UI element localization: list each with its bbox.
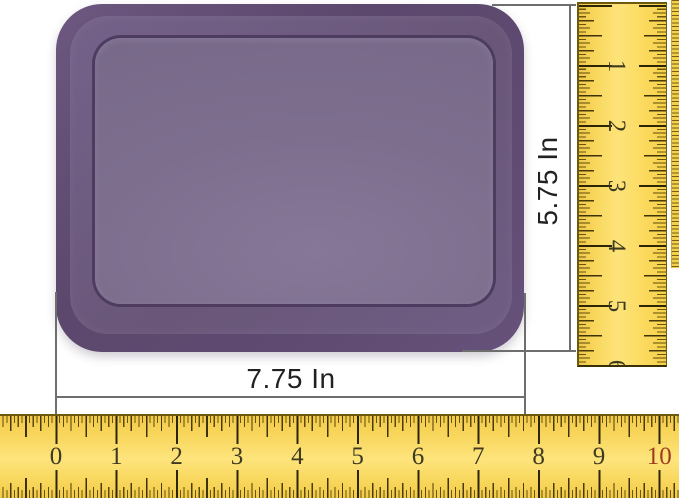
ruler-number: 3 bbox=[602, 180, 630, 193]
purple-lid bbox=[56, 4, 524, 352]
ruler-number: 5 bbox=[602, 300, 630, 313]
height-extension-line-bottom bbox=[462, 350, 576, 352]
ruler-number: 8 bbox=[532, 443, 545, 471]
ruler-number: 9 bbox=[593, 443, 606, 471]
ruler-number: 6 bbox=[412, 443, 425, 471]
product-measurement-image: 5.75 In 7.75 In 1 2 3 4 5 6 bbox=[0, 0, 679, 498]
ruler-number: 6 bbox=[602, 360, 630, 367]
ruler-number: 2 bbox=[170, 443, 183, 471]
width-dimension-line bbox=[55, 396, 525, 398]
ruler-tick-marks bbox=[0, 416, 679, 444]
ruler-number: 1 bbox=[110, 443, 123, 471]
ruler-number: 7 bbox=[472, 443, 485, 471]
lid-inner-panel bbox=[95, 38, 493, 304]
horizontal-ruler: 0 1 2 3 4 5 6 7 8 9 10 bbox=[0, 414, 679, 498]
ruler-number: 4 bbox=[291, 443, 304, 471]
height-dimension-label: 5.75 In bbox=[532, 136, 564, 225]
ruler-number: 5 bbox=[351, 443, 364, 471]
ruler-number: 0 bbox=[50, 443, 63, 471]
height-dimension-line bbox=[569, 4, 571, 350]
ruler-number: 10 bbox=[647, 443, 672, 471]
width-dimension-label: 7.75 In bbox=[246, 363, 335, 395]
ruler-number: 2 bbox=[602, 120, 630, 133]
ruler-number: 4 bbox=[602, 240, 630, 253]
partial-ruler-edge bbox=[671, 0, 679, 268]
ruler-tick-marks bbox=[672, 0, 679, 268]
ruler-number: 1 bbox=[602, 60, 630, 73]
ruler-number: 3 bbox=[231, 443, 244, 471]
vertical-ruler: 1 2 3 4 5 6 bbox=[577, 2, 667, 367]
ruler-tick-marks bbox=[639, 2, 666, 365]
ruler-tick-marks bbox=[0, 470, 679, 498]
height-extension-line-top bbox=[492, 4, 576, 6]
